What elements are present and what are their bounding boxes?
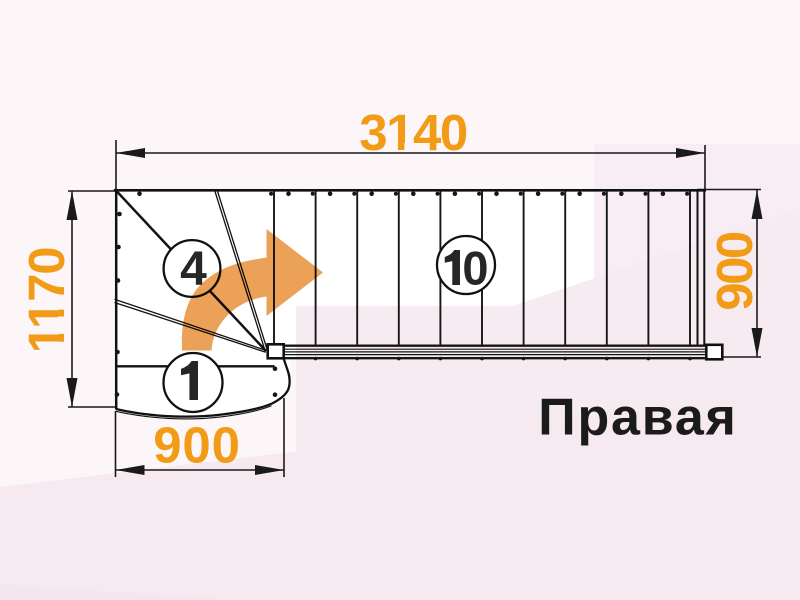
svg-text:1170: 1170 xyxy=(18,248,75,354)
svg-text:900: 900 xyxy=(153,417,241,474)
svg-text:Правая: Правая xyxy=(538,389,737,447)
svg-text:900: 900 xyxy=(706,232,763,311)
svg-text:0: 0 xyxy=(462,242,488,295)
svg-text:3140: 3140 xyxy=(359,104,467,161)
